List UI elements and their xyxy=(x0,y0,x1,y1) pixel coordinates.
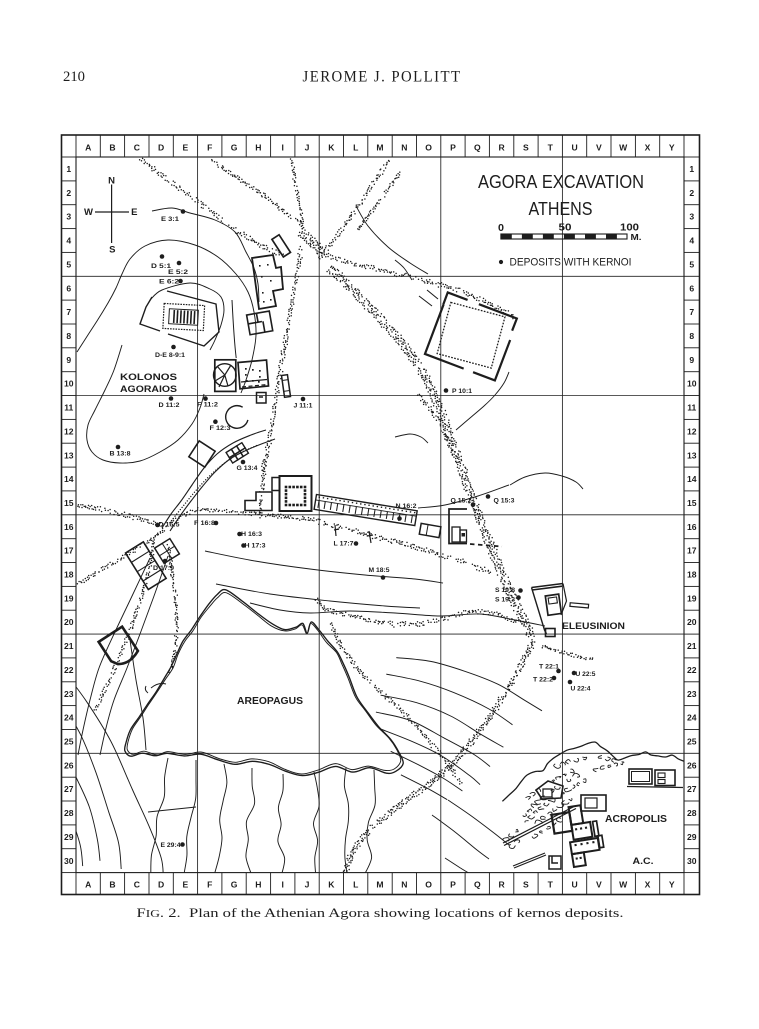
svg-text:KOLONOS: KOLONOS xyxy=(120,372,177,382)
svg-text:AGORA EXCAVATION: AGORA EXCAVATION xyxy=(478,172,644,192)
svg-text:DEPOSITS WITH KERNOI: DEPOSITS WITH KERNOI xyxy=(510,257,632,269)
svg-text:T 22:2: T 22:2 xyxy=(533,677,553,684)
svg-text:20: 20 xyxy=(64,617,74,627)
svg-text:F 12:3: F 12:3 xyxy=(210,425,231,432)
svg-text:E: E xyxy=(131,207,137,218)
svg-text:6: 6 xyxy=(66,283,71,293)
svg-text:T: T xyxy=(548,143,554,153)
svg-text:G: G xyxy=(231,143,238,153)
svg-text:29: 29 xyxy=(64,832,74,842)
svg-text:E 3:1: E 3:1 xyxy=(161,216,180,223)
svg-text:9: 9 xyxy=(66,355,71,365)
svg-text:1: 1 xyxy=(689,164,694,174)
svg-text:29: 29 xyxy=(687,832,697,842)
svg-text:30: 30 xyxy=(64,856,74,866)
svg-text:U 22:4: U 22:4 xyxy=(571,686,591,693)
svg-text:W: W xyxy=(84,207,93,218)
svg-text:17: 17 xyxy=(687,546,697,556)
svg-text:W: W xyxy=(619,143,628,153)
svg-text:17: 17 xyxy=(64,546,74,556)
svg-text:L 17:7: L 17:7 xyxy=(334,541,354,548)
svg-text:16: 16 xyxy=(687,522,697,532)
svg-text:15: 15 xyxy=(687,498,697,508)
svg-text:N: N xyxy=(401,880,407,890)
svg-text:J 11:1: J 11:1 xyxy=(294,403,313,410)
svg-text:J: J xyxy=(305,880,310,890)
svg-text:F: F xyxy=(207,880,212,890)
svg-text:23: 23 xyxy=(687,689,697,699)
svg-text:U 22:5: U 22:5 xyxy=(576,671,596,678)
svg-text:Y: Y xyxy=(669,880,675,890)
svg-text:19: 19 xyxy=(64,593,74,603)
svg-text:N 16:2: N 16:2 xyxy=(396,503,417,510)
svg-text:N: N xyxy=(108,176,115,187)
svg-text:7: 7 xyxy=(689,307,694,317)
svg-text:L: L xyxy=(353,880,358,890)
svg-text:D-E 8-9:1: D-E 8-9:1 xyxy=(155,352,185,359)
svg-text:M: M xyxy=(376,143,383,153)
svg-text:11: 11 xyxy=(687,403,696,413)
svg-text:K: K xyxy=(328,143,335,153)
svg-text:C: C xyxy=(134,143,140,153)
svg-text:ATHENS: ATHENS xyxy=(529,199,593,219)
svg-text:D: D xyxy=(158,880,164,890)
svg-text:Q 15:3: Q 15:3 xyxy=(494,498,515,505)
svg-text:I: I xyxy=(282,143,284,153)
svg-text:T 22:1: T 22:1 xyxy=(539,664,559,671)
svg-text:26: 26 xyxy=(687,760,697,770)
svg-text:D: D xyxy=(158,143,164,153)
svg-text:G 13:4: G 13:4 xyxy=(237,465,258,472)
svg-text:D 17:9: D 17:9 xyxy=(153,565,174,572)
svg-text:N: N xyxy=(401,143,407,153)
svg-text:14: 14 xyxy=(687,474,697,484)
svg-text:E 6:2: E 6:2 xyxy=(159,279,180,286)
svg-text:P 10:1: P 10:1 xyxy=(452,388,472,395)
svg-text:A.C.: A.C. xyxy=(633,856,654,867)
svg-text:F 11:2: F 11:2 xyxy=(197,402,219,409)
svg-text:B: B xyxy=(109,880,115,890)
svg-text:24: 24 xyxy=(64,713,74,723)
svg-text:10: 10 xyxy=(64,379,74,389)
svg-text:11: 11 xyxy=(64,403,73,413)
svg-text:22: 22 xyxy=(64,665,74,675)
svg-text:M: M xyxy=(376,880,383,890)
svg-text:X: X xyxy=(645,143,651,153)
svg-text:F 16:8: F 16:8 xyxy=(194,520,215,527)
svg-text:G: G xyxy=(231,880,238,890)
svg-text:U: U xyxy=(571,143,577,153)
svg-text:B 13:8: B 13:8 xyxy=(110,451,131,458)
svg-text:H: H xyxy=(255,880,261,890)
svg-text:28: 28 xyxy=(687,808,697,818)
svg-text:FIG. 2. Plan of the Athenian: FIG. 2. Plan of the Athenian Agora showi… xyxy=(137,905,624,920)
svg-text:H 16:3: H 16:3 xyxy=(241,531,262,538)
svg-text:14: 14 xyxy=(64,474,74,484)
svg-text:T: T xyxy=(548,880,554,890)
svg-text:19: 19 xyxy=(687,593,697,603)
svg-text:Q: Q xyxy=(474,880,481,890)
svg-text:R: R xyxy=(498,880,505,890)
svg-text:V: V xyxy=(596,880,602,890)
svg-text:12: 12 xyxy=(687,426,697,436)
svg-text:16: 16 xyxy=(64,522,74,532)
svg-text:O: O xyxy=(425,880,432,890)
svg-text:18: 18 xyxy=(687,570,697,580)
svg-text:I: I xyxy=(282,880,284,890)
svg-text:3: 3 xyxy=(689,212,694,222)
svg-text:Q: Q xyxy=(474,143,481,153)
svg-text:22: 22 xyxy=(687,665,697,675)
svg-text:4: 4 xyxy=(66,236,71,246)
svg-text:U: U xyxy=(571,880,577,890)
svg-text:P: P xyxy=(450,880,456,890)
svg-text:C: C xyxy=(134,880,140,890)
svg-text:AREOPAGUS: AREOPAGUS xyxy=(237,696,303,707)
svg-text:E: E xyxy=(183,143,189,153)
svg-text:H 17:3: H 17:3 xyxy=(245,543,266,550)
svg-text:E 5:2: E 5:2 xyxy=(168,269,189,276)
svg-text:S: S xyxy=(109,245,115,256)
svg-text:0: 0 xyxy=(498,222,504,234)
svg-text:12: 12 xyxy=(64,426,74,436)
svg-text:V: V xyxy=(596,143,602,153)
svg-text:27: 27 xyxy=(64,784,74,794)
svg-text:L: L xyxy=(353,143,358,153)
svg-text:JEROME J. POLLITT: JEROME J. POLLITT xyxy=(303,69,462,86)
svg-text:8: 8 xyxy=(66,331,71,341)
svg-text:15: 15 xyxy=(64,498,74,508)
svg-text:210: 210 xyxy=(63,69,85,85)
svg-text:1: 1 xyxy=(66,164,71,174)
svg-text:6: 6 xyxy=(689,283,694,293)
svg-text:D 11:2: D 11:2 xyxy=(159,402,180,409)
svg-text:AGORAIOS: AGORAIOS xyxy=(120,384,177,394)
svg-text:25: 25 xyxy=(687,737,697,747)
svg-text:F: F xyxy=(207,143,212,153)
svg-text:X: X xyxy=(645,880,651,890)
svg-text:21: 21 xyxy=(64,641,74,651)
svg-text:ACROPOLIS: ACROPOLIS xyxy=(605,814,667,825)
svg-text:M 18:5: M 18:5 xyxy=(369,567,390,574)
svg-text:8: 8 xyxy=(689,331,694,341)
svg-text:10: 10 xyxy=(687,379,697,389)
svg-text:2: 2 xyxy=(66,188,71,198)
svg-text:20: 20 xyxy=(687,617,697,627)
svg-text:E 29:4: E 29:4 xyxy=(161,842,181,849)
svg-text:5: 5 xyxy=(689,259,694,269)
svg-text:5: 5 xyxy=(66,259,71,269)
svg-text:Y: Y xyxy=(669,143,675,153)
svg-text:50: 50 xyxy=(559,222,572,234)
svg-text:S 19:3: S 19:3 xyxy=(495,597,515,604)
svg-text:S 19:8: S 19:8 xyxy=(495,587,515,594)
svg-text:13: 13 xyxy=(687,450,697,460)
svg-text:4: 4 xyxy=(689,236,694,246)
svg-text:P: P xyxy=(450,143,456,153)
svg-text:18: 18 xyxy=(64,570,74,580)
svg-text:S: S xyxy=(523,143,529,153)
svg-text:R: R xyxy=(498,143,505,153)
svg-text:26: 26 xyxy=(64,760,74,770)
svg-text:27: 27 xyxy=(687,784,697,794)
svg-text:E: E xyxy=(183,880,189,890)
svg-text:J: J xyxy=(305,143,310,153)
svg-text:H: H xyxy=(255,143,261,153)
svg-text:O: O xyxy=(425,143,432,153)
svg-text:Q 15:2: Q 15:2 xyxy=(451,498,472,505)
svg-text:28: 28 xyxy=(64,808,74,818)
svg-text:30: 30 xyxy=(687,856,697,866)
svg-text:A: A xyxy=(85,880,91,890)
svg-text:K: K xyxy=(328,880,335,890)
svg-text:D 16:5: D 16:5 xyxy=(159,522,180,529)
svg-text:A: A xyxy=(85,143,91,153)
svg-text:ELEUSINION: ELEUSINION xyxy=(562,621,625,631)
svg-text:B: B xyxy=(109,143,115,153)
svg-text:24: 24 xyxy=(687,713,697,723)
svg-text:3: 3 xyxy=(66,212,71,222)
svg-text:25: 25 xyxy=(64,737,74,747)
svg-text:23: 23 xyxy=(64,689,74,699)
svg-text:2: 2 xyxy=(689,188,694,198)
svg-text:13: 13 xyxy=(64,450,74,460)
svg-text:7: 7 xyxy=(66,307,71,317)
svg-text:9: 9 xyxy=(689,355,694,365)
svg-text:S: S xyxy=(523,880,529,890)
svg-text:21: 21 xyxy=(687,641,697,651)
svg-text:M.: M. xyxy=(631,232,642,242)
svg-text:W: W xyxy=(619,880,628,890)
